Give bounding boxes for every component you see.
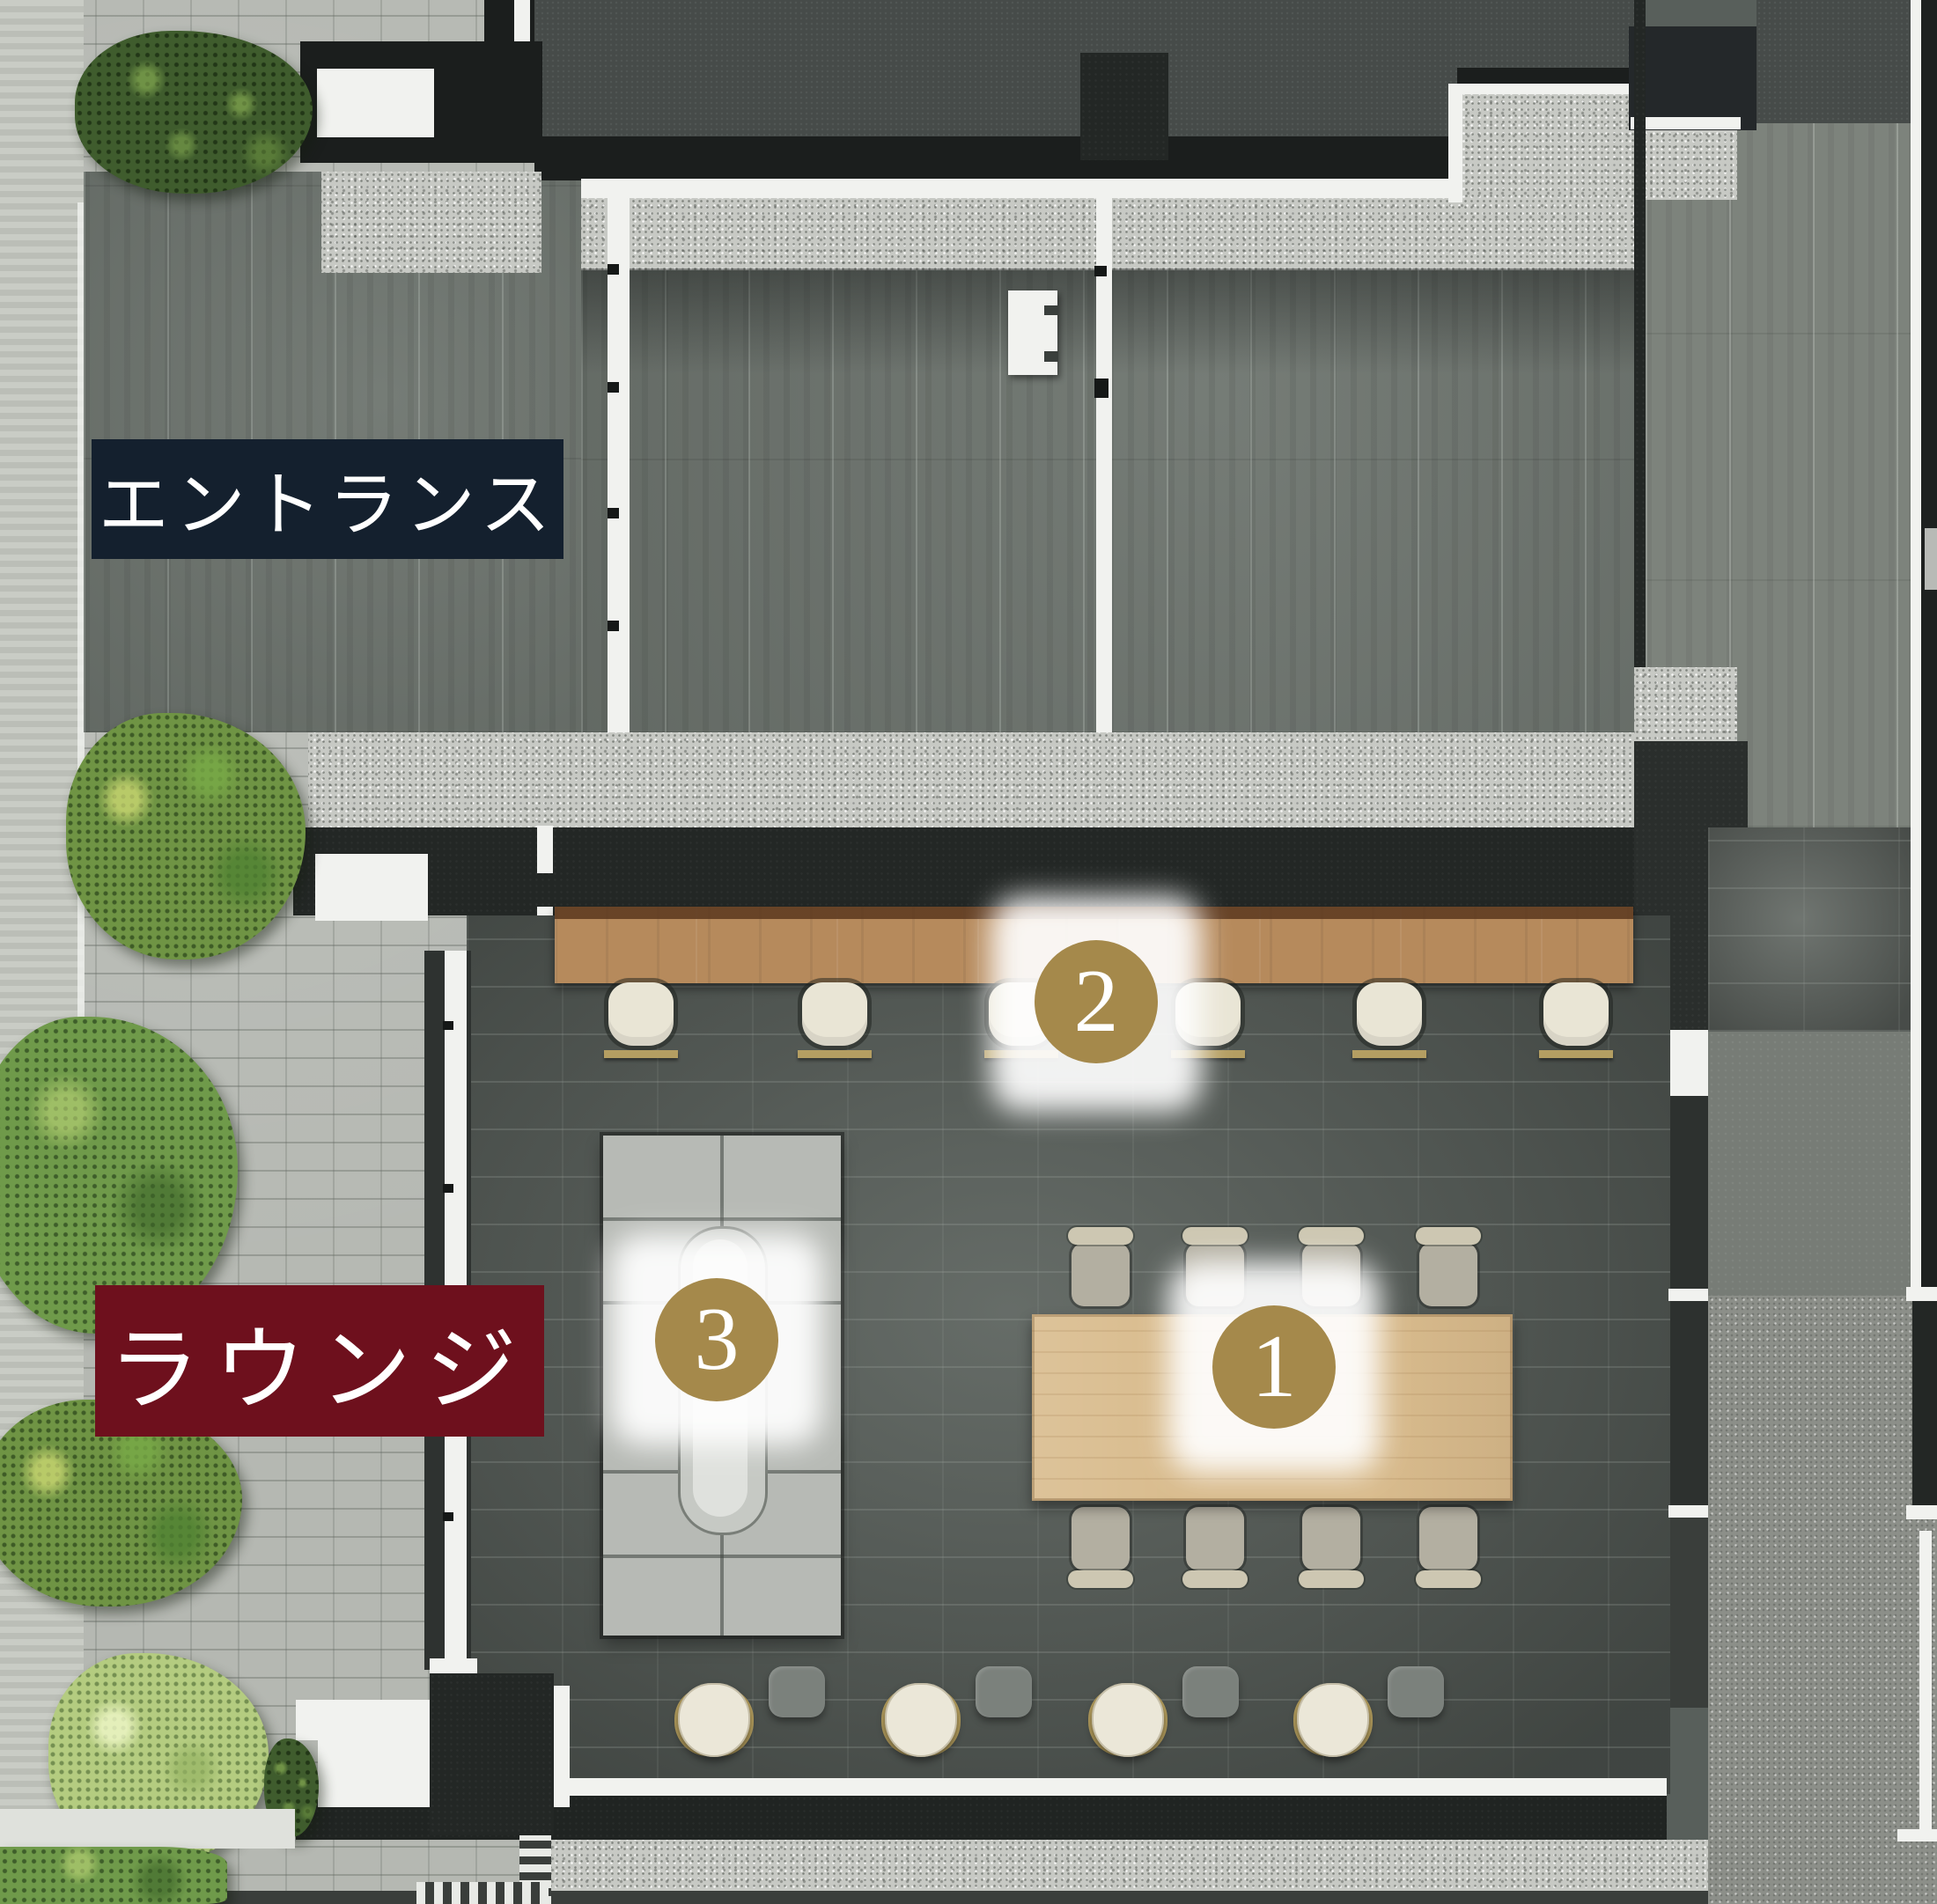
hall-right-divider [1634,0,1646,741]
terrace-bottom-granite [1634,667,1737,741]
marker-3[interactable]: 3 [655,1278,778,1401]
roof-right-porch [1457,0,1646,70]
porch-granite-step [321,172,541,273]
se-white-line-v [1919,1531,1932,1830]
left-wall-tick-1 [608,264,619,275]
floor-plan: 1 2 3 エントランス ラウンジ [0,0,1937,1904]
dining-chair-bottom-1 [1068,1498,1133,1588]
divider-tick-1 [1094,266,1107,276]
left-wall-tick-2 [608,382,619,393]
divider-tick-2 [1094,379,1108,398]
dining-chair-top-4 [1416,1225,1481,1315]
hall-door-divider [1096,198,1112,732]
entrance-label: エントランス [92,439,563,559]
sw-corner-block [430,1673,554,1835]
roof-center [534,0,1469,138]
hedge-bottom-left [0,1847,227,1904]
lounge-label: ラウンジ [95,1285,544,1437]
entrance-label-text: エントランス [99,448,556,550]
dining-chair-bottom-2 [1182,1498,1248,1588]
hall-bottom-granite [308,732,1634,827]
hall-left-wall-trim [608,179,630,733]
sw-block-trim [554,1686,570,1807]
marker-1-number: 1 [1252,1322,1297,1412]
lounge-chair-4 [1297,1683,1369,1757]
counter-stool-6 [1539,981,1613,1062]
north-wall-window [315,854,428,921]
lounge-chair-3 [1092,1683,1164,1757]
lounge-label-text: ラウンジ [108,1295,531,1428]
hedge-top-left [75,31,313,194]
east-edge-bar [1912,1301,1937,1505]
sign-stand [1008,290,1057,375]
mullion-tick-2 [443,1184,453,1193]
left-wall-tick-4 [608,621,619,631]
entry-column [1080,53,1168,160]
dining-chair-top-1 [1068,1225,1133,1315]
lounge-chair-2 [885,1683,957,1757]
east-wall-bar [1670,1096,1708,1514]
side-table-4 [1388,1666,1444,1717]
sw-garden-wall [0,1809,295,1849]
mullion-tick-1 [443,1021,453,1030]
east-terrace-lower [1708,1296,1937,1904]
lounge-chair-1 [678,1683,750,1757]
lounge-north-wall [293,827,1646,915]
south-dark-edge [84,1891,1717,1904]
marker-2-number: 2 [1074,957,1119,1047]
hedge-mid-left [66,713,306,959]
top-right-block [1629,26,1757,130]
sw-wall-band [296,1700,430,1740]
sofa-seam-h4 [603,1555,841,1558]
sw-wall-opening [318,1740,430,1807]
east-wall-tick-2 [1668,1505,1708,1518]
sofa-seam-h1 [603,1217,841,1221]
marker-2[interactable]: 2 [1035,940,1158,1063]
east-wall-bar-lower [1670,1518,1708,1708]
counter-stool-1 [604,981,678,1062]
sign-stand-notch-1 [1044,305,1058,315]
left-wall-tick-3 [608,508,619,518]
east-edge-panel [1925,528,1937,590]
se-white-line-h [1897,1829,1937,1842]
side-table-3 [1182,1666,1239,1717]
patio-tiles-ne [1708,827,1911,1032]
porch-corner-opening [317,69,434,137]
counter-stool-2 [798,981,872,1062]
dining-chair-bottom-4 [1416,1498,1481,1588]
porch-step-trim [1448,84,1462,202]
east-edge-tick-1 [1906,1287,1937,1301]
east-edge-dark [1921,0,1937,1290]
side-table-2 [976,1666,1032,1717]
mullion-tick-4 [443,1512,453,1521]
side-table-1 [769,1666,825,1717]
top-right-block-trim [1631,117,1741,129]
pavement-edge-strip [0,0,84,1904]
sign-stand-notch-2 [1044,351,1058,362]
north-wall-post-1 [537,826,553,873]
marker-3-number: 3 [695,1295,740,1385]
stairs-horizontal [416,1882,549,1904]
east-terrace-upper [1708,1032,1937,1296]
south-glass-line [563,1778,1667,1797]
right-porch-band [1457,68,1646,85]
east-wall-tick-1 [1668,1289,1708,1301]
dining-chair-bottom-3 [1299,1498,1364,1588]
east-edge-tick-2 [1906,1505,1937,1519]
south-granite-walk [541,1840,1717,1891]
east-wall-block [1670,1030,1708,1096]
east-boundary-line [1911,0,1921,1290]
counter-stool-5 [1352,981,1426,1062]
marker-1[interactable]: 1 [1212,1305,1336,1429]
